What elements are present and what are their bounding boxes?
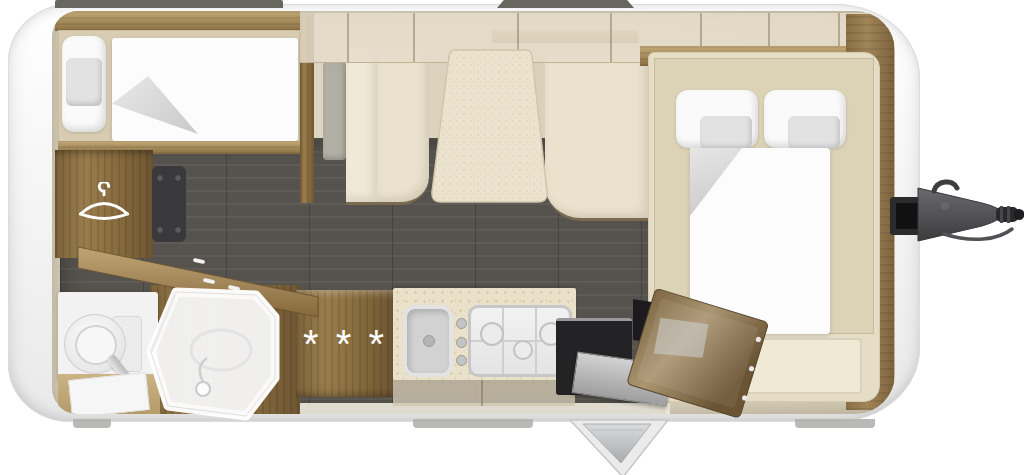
dinette-bench-left: [377, 48, 429, 205]
rear-shelf: [55, 11, 300, 31]
dinette-bench-left-back: [346, 48, 377, 205]
knob: [456, 318, 467, 329]
locker-divider: [517, 13, 519, 62]
caravan-floorplan: * * *: [0, 0, 1024, 475]
bottom-window-right: [795, 419, 875, 428]
coupling-head: [996, 207, 1018, 222]
sink-drain: [423, 335, 435, 347]
jockey-handle: [934, 182, 957, 191]
wardrobe: [55, 150, 153, 258]
knob: [456, 355, 467, 366]
bottom-window-mid: [413, 419, 533, 428]
roof-window-mid: [497, 0, 634, 8]
entry-door-open-icon: [570, 420, 668, 475]
tv-panel: [152, 166, 186, 242]
locker-divider: [413, 13, 415, 62]
breakaway-cable: [944, 229, 1012, 239]
knob: [456, 337, 467, 348]
double-bed-cushion-right: [788, 116, 840, 149]
single-bed-cushion: [66, 58, 102, 106]
roof-window-rear: [55, 0, 283, 8]
drawer-unit: * * *: [296, 290, 393, 397]
drawer-unit-stars: * * *: [296, 324, 393, 364]
hanger-icon: [75, 182, 133, 226]
dinette-side-cushion: [323, 62, 346, 160]
dinette-bench-right: [545, 54, 648, 221]
double-bed-cushion-left: [700, 116, 752, 149]
hob-knobs: [455, 318, 467, 366]
bathroom-cabinetry: [150, 285, 300, 414]
double-bed-foot-frame: [664, 338, 862, 394]
burner: [513, 340, 533, 360]
interior: * * *: [52, 11, 895, 414]
bath-mat: [68, 372, 150, 414]
bottom-window-left: [73, 419, 111, 428]
sink-icon: [403, 305, 453, 377]
locker-divider: [610, 13, 612, 62]
locker-divider: [347, 13, 349, 62]
burner: [480, 322, 504, 346]
